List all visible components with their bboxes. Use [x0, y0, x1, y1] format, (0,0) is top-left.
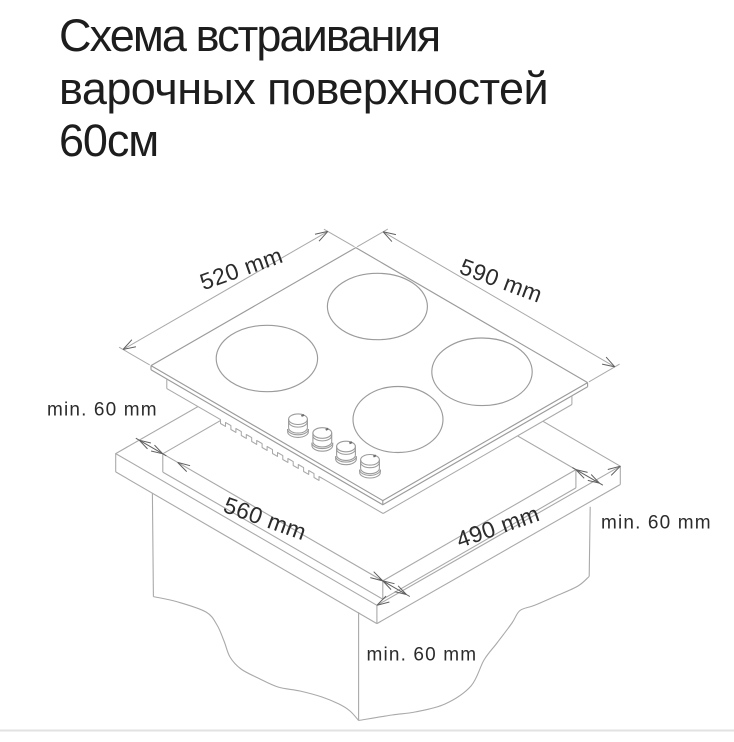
- svg-text:590 mm: 590 mm: [456, 253, 546, 308]
- svg-text:490 mm: 490 mm: [453, 500, 543, 553]
- svg-text:min. 60 mm: min. 60 mm: [601, 513, 712, 534]
- svg-text:560 mm: 560 mm: [220, 492, 310, 546]
- svg-text:min. 60 mm: min. 60 mm: [47, 400, 158, 421]
- svg-text:min. 60 mm: min. 60 mm: [367, 645, 478, 666]
- svg-text:520 mm: 520 mm: [196, 242, 286, 295]
